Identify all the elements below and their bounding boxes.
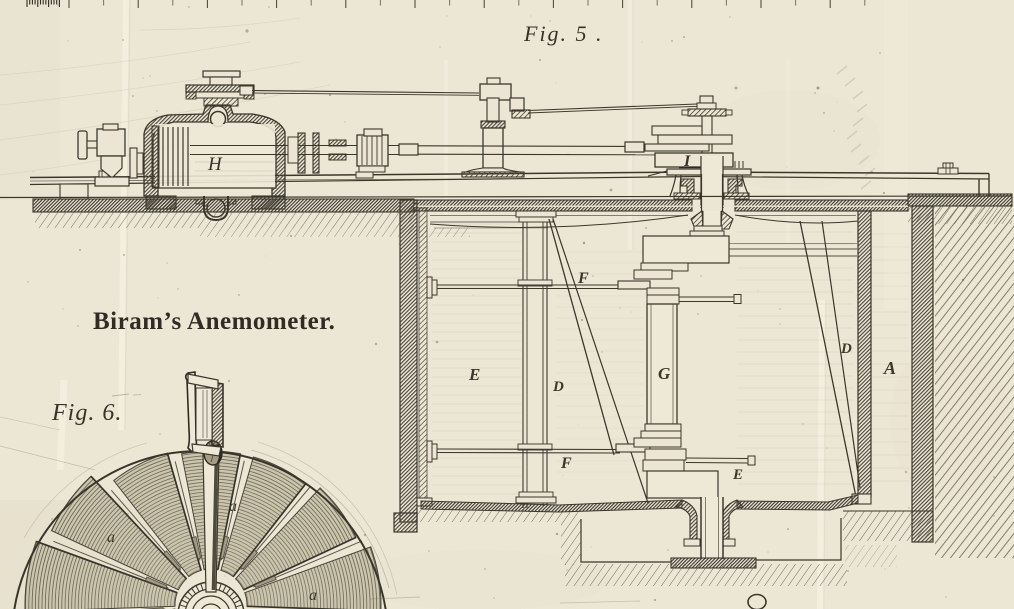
- svg-text:E: E: [732, 467, 743, 483]
- svg-text:H: H: [207, 154, 223, 175]
- svg-text:G: G: [658, 364, 671, 383]
- svg-text:I: I: [683, 153, 691, 170]
- svg-text:Fig. 6.: Fig. 6.: [51, 400, 122, 426]
- svg-text:a: a: [107, 529, 115, 546]
- svg-text:E: E: [468, 365, 480, 384]
- svg-text:F: F: [560, 455, 572, 472]
- svg-text:A: A: [883, 358, 896, 378]
- svg-text:Biram’s Anemometer.: Biram’s Anemometer.: [93, 308, 335, 335]
- svg-text:a: a: [229, 498, 237, 515]
- svg-text:Fig. 5 .: Fig. 5 .: [523, 21, 604, 46]
- svg-text:F: F: [577, 270, 589, 287]
- svg-text:a: a: [309, 587, 317, 604]
- svg-text:D: D: [552, 379, 564, 395]
- svg-text:D: D: [840, 341, 852, 357]
